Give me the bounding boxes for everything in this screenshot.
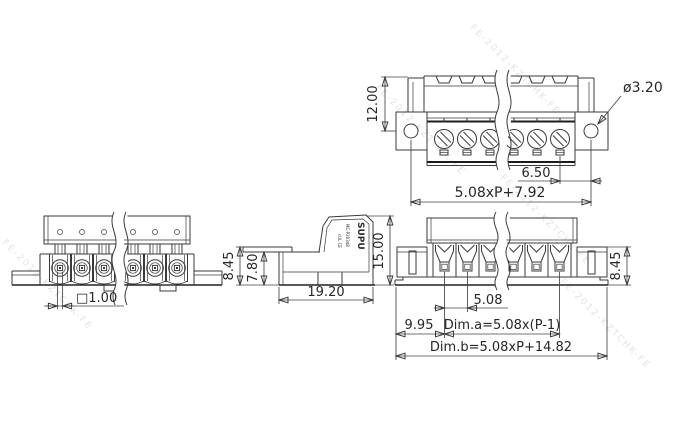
dim-label: Dim.b=5.08xP+14.82	[430, 340, 572, 355]
terminal-unit	[167, 244, 188, 284]
dimension-plug-height: 8.45	[607, 247, 631, 285]
castellation-notch	[552, 76, 568, 83]
dim-label: 8.45	[222, 252, 237, 281]
mounting-hole-right	[584, 124, 598, 138]
screw	[528, 118, 547, 155]
top-view: 12.00 ø3.20 6.50 5.08xP+7.92	[366, 70, 663, 206]
break-line	[494, 212, 510, 290]
dim-label: 7.80	[246, 254, 261, 283]
dim-label: 12.00	[366, 85, 381, 122]
dim-label: 5.08xP+7.92	[455, 185, 546, 201]
wire-entry-cell	[525, 243, 548, 277]
plug-view: 8.45 5.08 9.95 Dim.a=5.08x(P-1) Dim.b=5.…	[395, 212, 631, 360]
dim-label: 9.95	[405, 318, 434, 333]
castellation-notch	[436, 76, 452, 83]
dim-label: 6.50	[522, 166, 551, 181]
side-view: SUPU MC-P20348 cUL CE 8.45 7.80 19.20 15…	[222, 215, 394, 304]
cert-marks: cUL CE	[337, 234, 342, 248]
terminal-unit	[145, 244, 166, 284]
terminal-unit	[94, 244, 115, 284]
model-label: MC-P20348	[345, 224, 350, 247]
watermark-text: FE-2012-KZTCHK-FE	[373, 83, 467, 177]
front-view: □1.00	[12, 212, 222, 309]
wire-entry-cell	[433, 243, 456, 277]
dimension-depth: 19.20	[279, 285, 373, 304]
side-view-marking: SUPU MC-P20348 cUL CE	[337, 222, 365, 250]
dim-label: 8.45	[609, 252, 624, 281]
terminal-unit	[50, 244, 71, 284]
watermark-text: FE-2012-KZTCHK-FE	[468, 23, 562, 117]
dim-label: Dim.a=5.08x(P-1)	[444, 318, 561, 333]
dimension-body-height: 7.80	[246, 252, 264, 285]
screw	[551, 118, 570, 155]
dim-label: 19.20	[307, 285, 344, 300]
watermark-text: FE-2012-KZTCHK-FE	[558, 277, 652, 371]
dim-label: ø3.20	[623, 80, 663, 96]
dim-label: 15.00	[372, 232, 387, 269]
terminal-unit	[72, 244, 93, 284]
wire-entry-cell	[456, 243, 479, 277]
dim-label: □1.00	[76, 291, 117, 306]
screw	[458, 118, 477, 155]
drawing-canvas: FE-2012-KZTCHK-FE FE-2012-KZTCHK-FE FE-2…	[0, 0, 680, 440]
dimension-total-height: 15.00	[366, 216, 394, 285]
technical-drawing-page: FE-2012-KZTCHK-FE FE-2012-KZTCHK-FE FE-2…	[0, 0, 680, 440]
break-line	[495, 70, 511, 170]
brand-label: SUPU	[355, 222, 365, 250]
dim-label: 5.08	[474, 293, 503, 308]
castellation-notch	[459, 76, 475, 83]
